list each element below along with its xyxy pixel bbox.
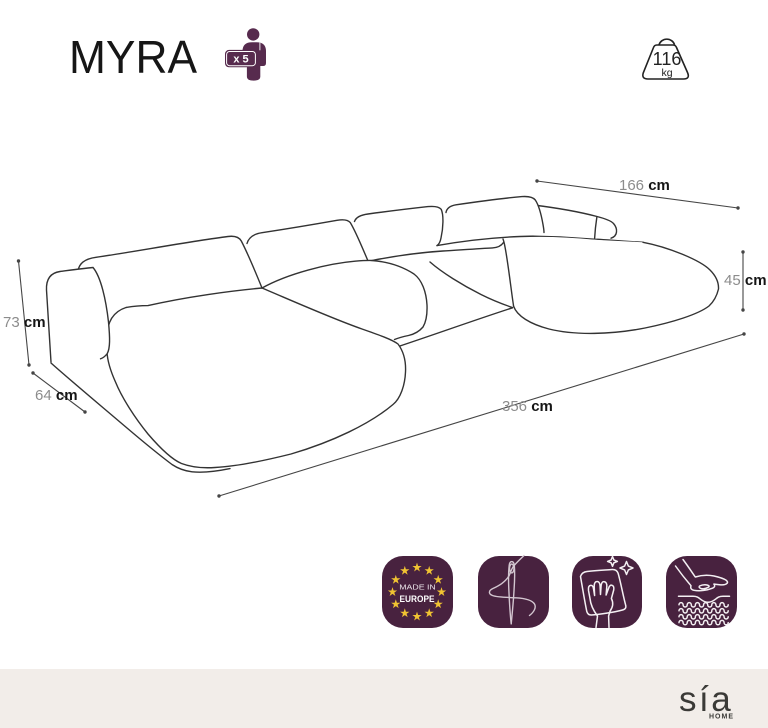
svg-text:kg: kg — [661, 67, 672, 79]
svg-text:64 cm: 64 cm — [35, 387, 78, 404]
svg-text:x 5: x 5 — [233, 54, 248, 66]
svg-text:HOME: HOME — [709, 714, 734, 721]
svg-text:166 cm: 166 cm — [619, 177, 670, 194]
svg-text:116: 116 — [653, 49, 682, 69]
svg-text:MYRA: MYRA — [69, 31, 197, 83]
svg-text:45 cm: 45 cm — [724, 272, 767, 289]
svg-text:73 cm: 73 cm — [3, 314, 46, 331]
svg-text:MADE IN: MADE IN — [399, 582, 436, 591]
svg-text:EUROPE: EUROPE — [400, 594, 435, 604]
svg-text:356 cm: 356 cm — [502, 398, 553, 415]
